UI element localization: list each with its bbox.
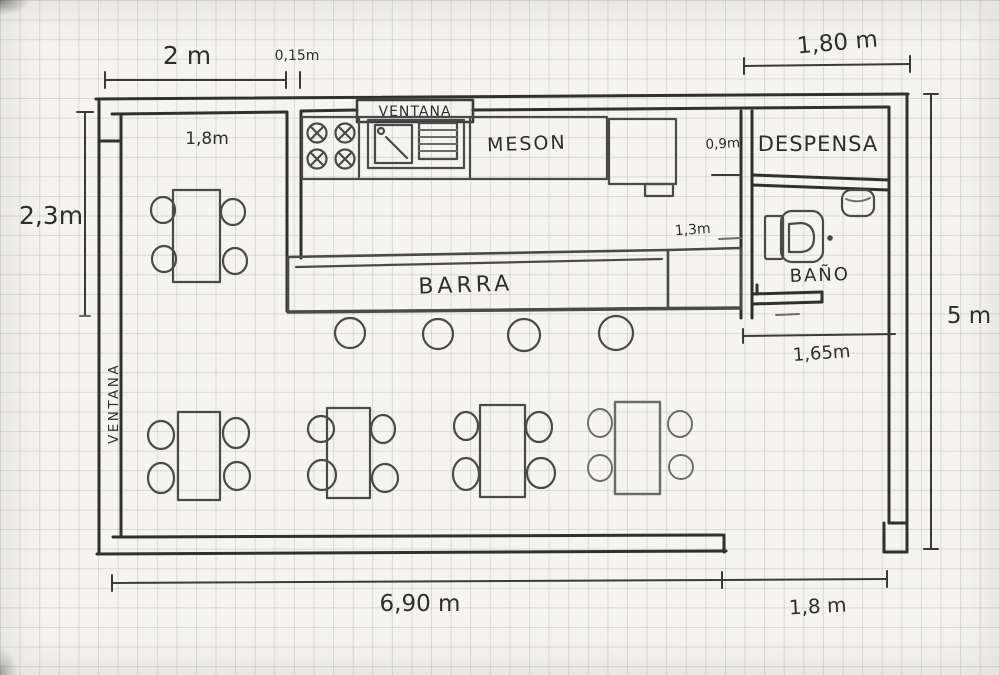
- faucet-icon: [378, 128, 384, 134]
- dimension-bathroom-width: [743, 329, 895, 343]
- dining-table-2: [308, 408, 398, 498]
- left-window-label: VENTANA: [106, 363, 122, 444]
- dining-nook-width-label: 1,8m: [185, 129, 229, 149]
- dimension-top-left: [105, 72, 300, 88]
- entrance-width-label: 1,8 m: [788, 593, 847, 620]
- chair: [308, 416, 334, 442]
- wall-thickness-label: 0,15m: [275, 48, 320, 64]
- chair: [148, 421, 174, 449]
- stove-burner: [336, 150, 355, 169]
- outer-walls: [96, 94, 908, 554]
- pantry-door-label: 0,9m: [705, 135, 740, 153]
- bar-stool: [335, 318, 365, 348]
- fridge-handle: [645, 184, 673, 196]
- fridge: [609, 119, 676, 196]
- floor-plan-drawing: VENTANA VENTANA: [0, 0, 1000, 675]
- chair: [224, 462, 250, 490]
- chair: [151, 197, 175, 223]
- chair: [527, 458, 555, 488]
- toilet: [765, 211, 832, 262]
- dimension-bottom: [112, 571, 887, 591]
- dimension-top-left-label: 2 m: [163, 41, 211, 70]
- chair: [372, 464, 398, 492]
- chair: [668, 411, 692, 437]
- dining-table-4: [588, 402, 693, 494]
- bathroom-label: BAÑO: [789, 263, 850, 287]
- pantry-label: DESPENSA: [758, 132, 879, 156]
- chair: [453, 458, 479, 490]
- bar-stool: [599, 316, 633, 350]
- chair: [669, 455, 693, 479]
- stove-burner: [308, 124, 327, 143]
- dimension-bar-gap-tick: [719, 238, 741, 239]
- chair: [308, 460, 336, 490]
- dimension-right-height-label: 5 m: [947, 303, 991, 329]
- dining-table-3: [453, 405, 555, 497]
- chair: [148, 463, 174, 493]
- top-window: VENTANA: [357, 100, 473, 122]
- chair: [526, 412, 552, 442]
- stove: [308, 124, 355, 169]
- stove-burner: [308, 150, 327, 169]
- graph-paper-sheet: VENTANA VENTANA: [0, 0, 1000, 675]
- bar-gap-label: 1,3m: [674, 221, 711, 239]
- chair: [588, 455, 612, 481]
- chair: [371, 415, 395, 443]
- dimension-bottom-width-label: 6,90 m: [380, 591, 461, 617]
- bar-stool: [508, 319, 540, 351]
- bathroom-sink: [842, 190, 874, 216]
- dining-table-1: [148, 412, 250, 500]
- bar-stool: [423, 319, 453, 349]
- dimension-right-height: [924, 94, 938, 549]
- bar-stools: [335, 316, 633, 351]
- counter-label: MESON: [487, 132, 567, 157]
- chair: [223, 418, 249, 448]
- dimension-top-right-label: 1,80 m: [796, 27, 879, 60]
- dimension-left-height-label: 2,3m: [19, 201, 83, 230]
- bathroom-width-label: 1,65m: [792, 341, 851, 366]
- dining-table-top-left: [151, 190, 247, 282]
- dimension-top-right: [744, 56, 910, 74]
- stove-burner: [336, 124, 355, 143]
- chair: [454, 412, 478, 440]
- chair: [221, 199, 245, 225]
- shelf-rack: [419, 123, 457, 159]
- bar-counter: [288, 248, 741, 312]
- chair: [588, 409, 612, 437]
- chair: [223, 248, 247, 274]
- bathroom-door-mark: [776, 314, 799, 315]
- bar-label: BARRA: [418, 271, 514, 299]
